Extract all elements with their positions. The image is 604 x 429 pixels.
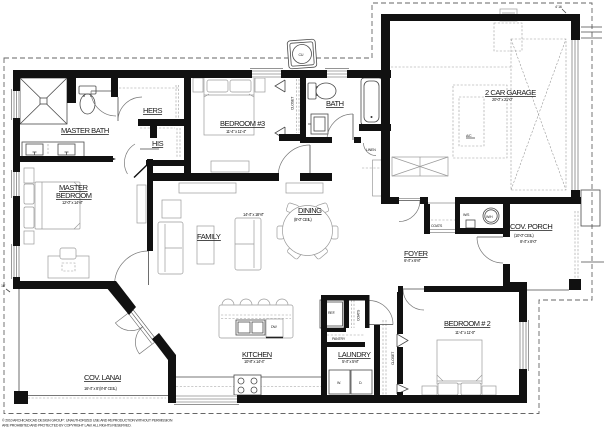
- svg-text:LINEN: LINEN: [366, 148, 376, 152]
- svg-text:DW: DW: [271, 325, 277, 329]
- svg-text:W.: W.: [337, 381, 341, 385]
- svg-text:2 CAR GARAGE: 2 CAR GARAGE: [485, 88, 536, 97]
- svg-text:BATH: BATH: [326, 99, 344, 108]
- svg-text:5'-4" x 5'-8": 5'-4" x 5'-8": [342, 359, 359, 364]
- svg-text:BEDROOM: BEDROOM: [56, 191, 92, 200]
- svg-text:D.: D.: [359, 381, 362, 385]
- svg-text:6'-4" x 6'-8": 6'-4" x 6'-8": [404, 258, 421, 263]
- svg-text:HERS: HERS: [143, 106, 162, 115]
- svg-text:W/S: W/S: [463, 213, 470, 217]
- svg-text:(10'-0" CEIL): (10'-0" CEIL): [514, 233, 534, 238]
- svg-text:LAUNDRY: LAUNDRY: [338, 350, 371, 359]
- svg-text:A/C: A/C: [466, 134, 472, 138]
- svg-text:CLOSET: CLOSET: [391, 351, 395, 365]
- svg-text:16'-4" x 8' (8'-8" CEIL): 16'-4" x 8' (8'-8" CEIL): [84, 386, 118, 391]
- svg-text:HIS: HIS: [152, 139, 164, 148]
- svg-text:MASTER BATH: MASTER BATH: [61, 126, 109, 135]
- svg-text:COV. LANAI: COV. LANAI: [84, 373, 121, 382]
- svg-text:11'-4" x 11'-0": 11'-4" x 11'-0": [455, 330, 476, 335]
- svg-text:BEDROOM #3: BEDROOM #3: [220, 119, 265, 128]
- svg-text:COV. PORCH: COV. PORCH: [510, 222, 552, 231]
- svg-text:KITCHEN: KITCHEN: [242, 350, 272, 359]
- svg-text:4′ 16: 4′ 16: [555, 5, 562, 9]
- svg-text:W/H: W/H: [486, 215, 493, 219]
- svg-text:CU: CU: [299, 53, 304, 57]
- svg-text:BEDROOM # 2: BEDROOM # 2: [444, 319, 491, 328]
- svg-text:© 2010 ARCHICADCAD DESIGN GRO: © 2010 ARCHICADCAD DESIGN GROUP : UNAUTH…: [2, 419, 173, 423]
- svg-text:CLOSET: CLOSET: [291, 96, 295, 110]
- svg-text:FOYER: FOYER: [404, 249, 429, 258]
- svg-text:14'-4" x 18'-8": 14'-4" x 18'-8": [243, 212, 264, 217]
- svg-text:10'-8" x 14'-4": 10'-8" x 14'-4": [244, 359, 265, 364]
- svg-text:16′: 16′: [1, 284, 6, 288]
- svg-text:8'-4" x 8'-0": 8'-4" x 8'-0": [520, 239, 537, 244]
- svg-text:FAMILY: FAMILY: [197, 232, 221, 241]
- svg-text:20'-0" x 21'-0": 20'-0" x 21'-0": [492, 97, 513, 102]
- svg-text:11'-4" x 11'-4": 11'-4" x 11'-4": [226, 129, 247, 134]
- svg-text:12'-0" x 14'-8": 12'-0" x 14'-8": [62, 200, 83, 205]
- svg-text:COATS: COATS: [431, 224, 443, 228]
- svg-text:REF.: REF.: [328, 311, 336, 315]
- svg-text:(8'-0" CEIL): (8'-0" CEIL): [294, 217, 312, 222]
- svg-text:DINING: DINING: [298, 206, 322, 215]
- svg-text:COATS: COATS: [357, 309, 361, 321]
- svg-text:PANTRY: PANTRY: [332, 337, 346, 341]
- svg-text:ARE PROHIBITED AND PROTECTED B: ARE PROHIBITED AND PROTECTED BY COPYRIGH…: [2, 423, 132, 427]
